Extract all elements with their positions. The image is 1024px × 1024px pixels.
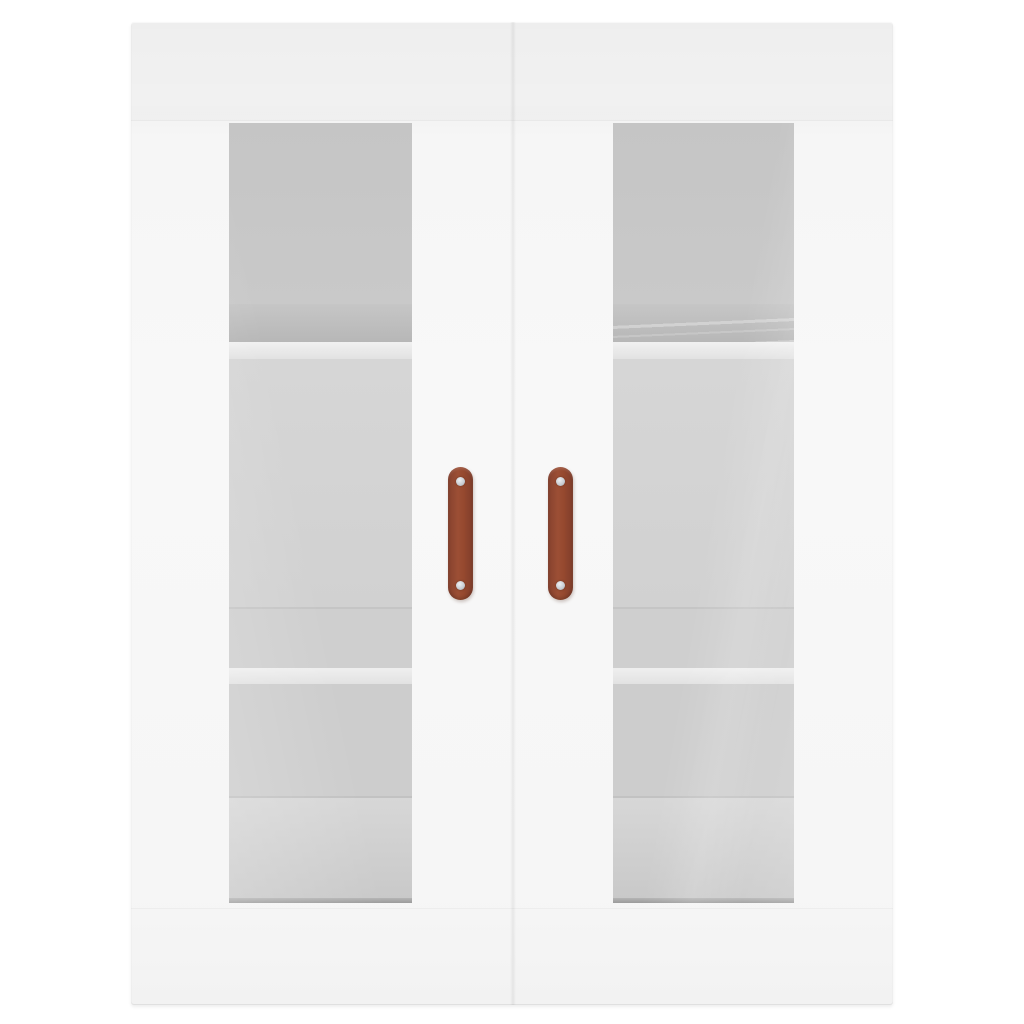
glass-panel-right [613,123,794,903]
glass-upper-section [613,123,794,304]
bottom-rail-seam [131,908,893,909]
product-photo [0,0,1024,1024]
glass-section-4 [229,684,412,796]
handle-screw-top [556,477,565,486]
handle-screw-bottom [556,581,565,590]
door-handle-left [448,467,473,600]
cabinet [131,22,893,1005]
glass-upper-section [229,123,412,304]
glass-bottom-edge [613,898,794,903]
shelf-edge-strip-2 [229,668,412,684]
glass-bottom-edge [229,898,412,903]
glass-mid-section [229,359,412,607]
glass-mid-section [613,359,794,607]
glass-panel-left [229,123,412,903]
glass-section-3 [613,609,794,668]
shelf-edge-strip-1 [613,342,794,359]
glass-section-3 [229,609,412,668]
shelf-shadow-band [229,304,412,342]
door-gap-line [510,22,516,1005]
glass-section-4 [613,684,794,796]
handle-screw-top [456,477,465,486]
glass-lower-section [613,798,794,898]
shelf-edge-strip-2 [613,668,794,684]
shelf-edge-strip-1 [229,342,412,359]
handle-screw-bottom [456,581,465,590]
door-handle-right [548,467,573,600]
glass-lower-section [229,798,412,898]
